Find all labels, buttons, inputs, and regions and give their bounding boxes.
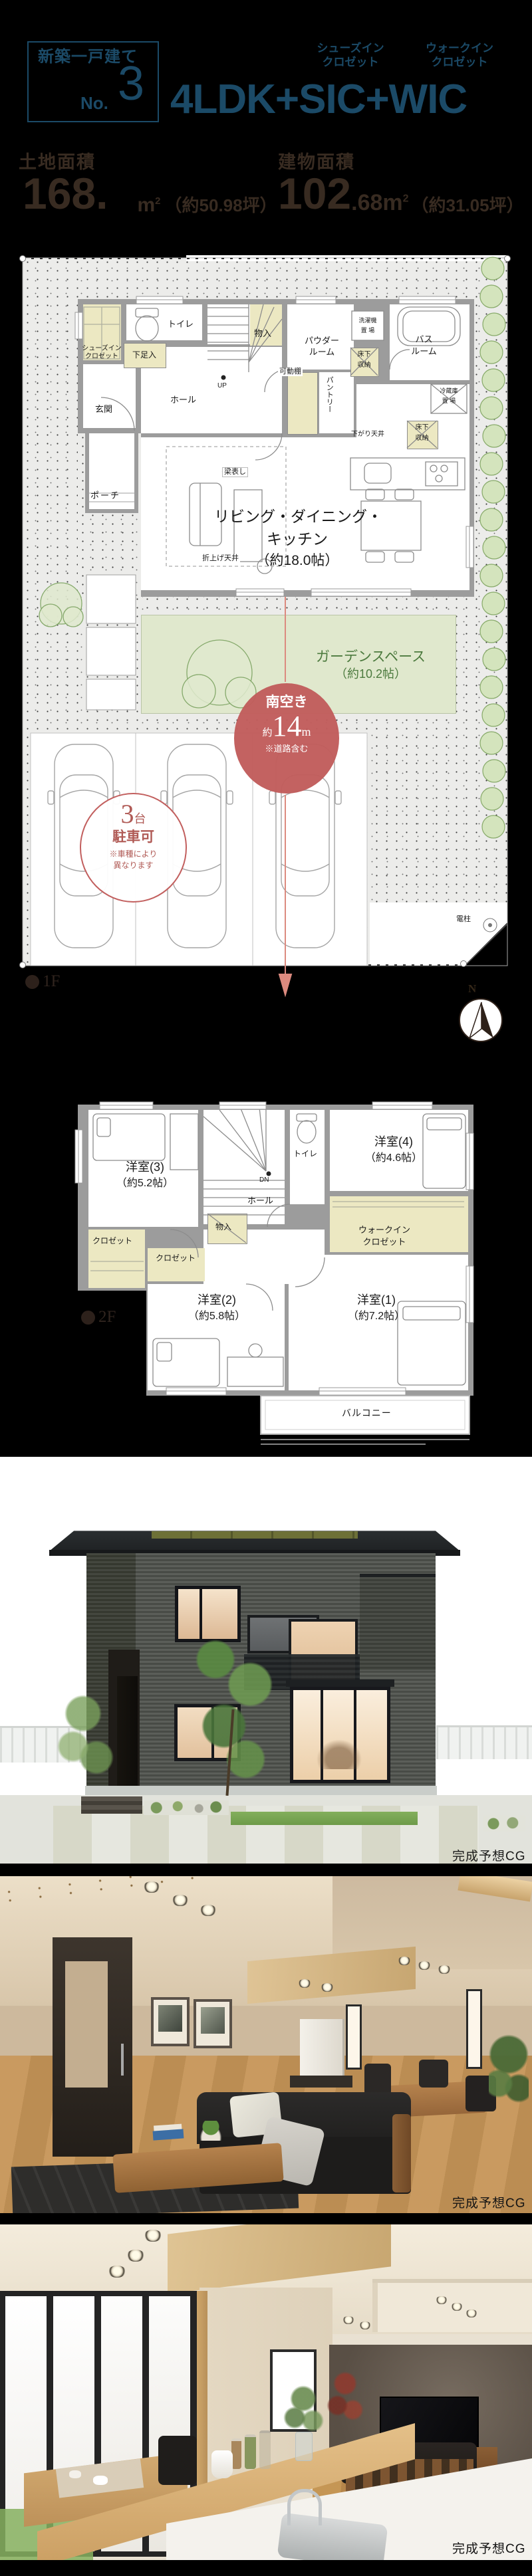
label-toilet-1f: トイレ <box>168 319 194 330</box>
label-pole: 電柱 <box>456 915 471 924</box>
floor1-marker: 1F <box>43 972 60 992</box>
label-wic-2: クロゼット <box>352 1236 416 1248</box>
label-wash-1: 洗濯機 <box>352 316 384 326</box>
int1-chair-2 <box>419 2060 448 2088</box>
south-distance: 14 <box>273 710 302 742</box>
south-line2: 約14m <box>234 712 339 741</box>
label-shelf: 可動棚 <box>278 368 303 376</box>
label-fs1a: 床下 <box>350 350 378 360</box>
header: 新築一戸建て No. 3 4LDK+SIC+WIC シューズイン クロゼット ウ… <box>0 0 532 255</box>
label-closet-a: クロゼット <box>92 1236 132 1245</box>
label-wic-1: ウォークイン <box>352 1224 416 1236</box>
sic-note-line1: シューズイン <box>311 41 390 55</box>
caption-interior1: 完成予想CG <box>452 2197 526 2212</box>
label-fridge: 冷蔵庫 置 場 <box>431 386 467 406</box>
label-powder: パウダー ルーム <box>299 335 345 358</box>
int1-chair-1 <box>364 2064 391 2095</box>
interior-photo-2: 完成予想CG <box>0 2224 532 2563</box>
exterior-photo: 完成予想CG <box>0 1457 532 1864</box>
int1-ceil-light-r1 <box>398 1957 411 1965</box>
room-2f-stairs <box>203 1110 285 1224</box>
label-porch: ポーチ <box>90 490 120 501</box>
ext-fence-right <box>436 1725 532 1759</box>
int1-bowl-plant <box>197 2121 225 2141</box>
int2-tray-light-1 <box>436 2296 448 2304</box>
land-area-value: 168. <box>23 171 108 215</box>
ext-planting-bed <box>144 1800 229 1815</box>
label-balcony: バルコニー <box>342 1408 392 1419</box>
label-bath: バス ルーム <box>406 334 442 358</box>
parking-line1: 3台 <box>80 801 187 827</box>
label-powder-1: パウダー <box>299 335 345 346</box>
label-r1-size: （約7.2帖） <box>336 1310 416 1323</box>
label-genkan: 玄関 <box>95 404 112 415</box>
compass-n: N <box>468 982 476 996</box>
sic-note-line2: クロゼット <box>311 55 390 69</box>
badge-no-prefix: No. <box>80 93 108 114</box>
parking-note2: 異なります <box>80 861 187 870</box>
label-downceiling: 下がり天井 <box>351 431 384 439</box>
ext-right-wing <box>360 1574 436 1670</box>
int2-cup-2 <box>69 2470 81 2478</box>
label-powder-2: ルーム <box>299 346 345 358</box>
label-bath-1: バス <box>406 334 442 346</box>
int1-ceil-light-r3 <box>438 1965 451 1974</box>
label-fridge-2: 置 場 <box>431 396 467 406</box>
int1-door-handle <box>121 2044 124 2076</box>
sic-note: シューズイン クロゼット <box>311 41 390 69</box>
label-r3-name: 洋室(3) <box>105 1160 185 1175</box>
int2-downlight-1 <box>144 2230 162 2242</box>
label-floorstorage-1: 床下 収納 <box>350 350 378 371</box>
land-area-unit: m2 <box>137 195 160 216</box>
int1-ceil-light-r2 <box>418 1961 431 1970</box>
label-r4: 洋室(4) （約4.6帖） <box>354 1135 434 1164</box>
int2-jar-2 <box>245 2434 256 2469</box>
floor2-marker-bullet <box>81 1311 95 1325</box>
label-ldk-2: キッチン <box>214 530 380 549</box>
land-area-unit-sup: 2 <box>155 195 160 207</box>
label-mono-2f: 物入 <box>215 1222 231 1232</box>
label-r3: 洋室(3) （約5.2帖） <box>105 1160 185 1190</box>
interior-photo-1: 完成予想CG <box>0 1876 532 2213</box>
building-area-value-row: 102 .68 m2 （約31.05坪） <box>278 171 524 215</box>
int2-vase <box>295 2432 313 2461</box>
int2-downlight-2 <box>126 2250 145 2262</box>
int1-kitchen-counter <box>290 2076 352 2088</box>
parking-note1: ※車種により <box>80 849 187 859</box>
badge-number: 3 <box>118 60 144 108</box>
wic-note-line1: ウォークイン <box>420 41 499 55</box>
label-floorstorage-2: 床下 収納 <box>407 423 437 444</box>
garden-label-line2: （約10.2帖） <box>299 667 442 682</box>
int1-downlight-1 <box>143 1881 160 1893</box>
int1-fridge <box>300 2019 344 2080</box>
int2-tray-light-5 <box>359 2321 371 2329</box>
int2-jar-3 <box>259 2430 271 2469</box>
int2-faucet <box>287 2489 322 2525</box>
south-approx: 約 <box>262 728 272 738</box>
parking-line2: 駐車可 <box>80 829 187 845</box>
ext-door <box>117 1676 138 1787</box>
label-r4-name: 洋室(4) <box>354 1135 434 1150</box>
int1-picture-2-art <box>201 2007 225 2034</box>
int1-slit-window-1 <box>346 2004 362 2070</box>
room-2f-1 <box>289 1255 468 1390</box>
label-sic-2: クロゼット <box>80 353 124 361</box>
label-oriage: 折上げ天井 <box>201 554 240 563</box>
bottom-black-strip <box>0 2563 532 2576</box>
label-wic: ウォークイン クロゼット <box>352 1224 416 1248</box>
int1-sofa-arm-wood <box>392 2114 411 2193</box>
caption-interior2: 完成予想CG <box>452 2542 526 2557</box>
balcony-outline <box>261 1396 469 1444</box>
label-bath-2: ルーム <box>406 346 442 358</box>
floor2-marker: 2F <box>98 1307 116 1327</box>
label-r2-size: （約5.8帖） <box>177 1310 257 1323</box>
property-flyer: 新築一戸建て No. 3 4LDK+SIC+WIC シューズイン クロゼット ウ… <box>0 0 532 2576</box>
building-area-tsubo: （約31.05坪） <box>412 196 524 215</box>
plot-top-margin <box>186 255 507 261</box>
label-r1: 洋室(1) （約7.2帖） <box>336 1293 416 1323</box>
wic-note: ウォークイン クロゼット <box>420 41 499 69</box>
ext-awning <box>286 1679 394 1687</box>
pantry-shelves <box>287 372 318 435</box>
int1-slit-window-2 <box>466 1989 482 2069</box>
parking-count-unit: 台 <box>134 812 146 825</box>
l-cut-2f <box>78 1291 146 1396</box>
closet-mono-1f <box>250 304 282 346</box>
ext-entrance-steps <box>81 1796 142 1814</box>
label-fs2b: 収納 <box>407 433 437 444</box>
label-fs2a: 床下 <box>407 423 437 433</box>
label-hall-1f: ホール <box>170 395 196 405</box>
building-area-int: 102 <box>278 171 351 215</box>
int1-soffit-light-1 <box>298 1979 311 1988</box>
int1-picture-1-art <box>158 2005 182 2032</box>
ext-solar-panels <box>152 1531 358 1539</box>
label-r4-size: （約4.6帖） <box>354 1152 434 1164</box>
int2-tray-light-3 <box>465 2309 477 2317</box>
label-fridge-1: 冷蔵庫 <box>431 386 467 396</box>
int2-downlight-3 <box>108 2266 126 2278</box>
land-area-label: 土地面積 <box>19 152 96 173</box>
garden-label-line1: ガーデンスペース <box>299 649 442 665</box>
building-area-frac: .68 <box>351 191 382 215</box>
ext-tree-left <box>53 1686 120 1796</box>
wic-note-line2: クロゼット <box>420 55 499 69</box>
ext-grass <box>231 1812 418 1825</box>
floor1-marker-bullet <box>25 975 39 989</box>
int2-kettle <box>211 2450 233 2478</box>
int1-plant <box>489 2030 529 2127</box>
south-line1: 南空き <box>234 694 339 710</box>
int2-cup-1 <box>93 2476 108 2485</box>
ext-interior-hint-dining <box>313 1736 366 1769</box>
caption-exterior: 完成予想CG <box>452 1850 526 1864</box>
plan-title: 4LDK+SIC+WIC <box>170 75 467 124</box>
label-shoe: 下足入 <box>124 350 165 360</box>
parking-count: 3 <box>121 799 134 829</box>
label-beam: 梁表し <box>222 467 248 477</box>
ext-planting-right <box>483 1816 525 1832</box>
label-dn: DN <box>259 1176 269 1184</box>
land-area-value-row: 168. m2 （約50.98坪） <box>23 171 277 215</box>
garden-label: ガーデンスペース （約10.2帖） <box>299 649 442 682</box>
parking-bubble-text: 3台 駐車可 ※車種により 異なります <box>80 801 187 870</box>
label-up: UP <box>217 382 227 390</box>
label-mono-1f: 物入 <box>254 328 271 339</box>
int2-jar-1 <box>231 2438 241 2469</box>
label-fs1b: 収納 <box>350 360 378 371</box>
label-wash-2: 置 場 <box>352 326 384 336</box>
int2-chair-black <box>158 2436 197 2485</box>
label-closet-b: クロゼット <box>156 1253 196 1263</box>
building-area-unit: m2 <box>382 191 408 215</box>
label-r3-size: （約5.2帖） <box>105 1177 185 1190</box>
label-hall-2f: ホール <box>247 1196 273 1206</box>
int1-door-panel <box>65 1961 108 2088</box>
int1-soffit-light-2 <box>321 1983 334 1992</box>
building-area-label: 建物面積 <box>278 152 355 173</box>
label-wash: 洗濯機 置 場 <box>352 316 384 336</box>
label-r1-name: 洋室(1) <box>336 1293 416 1308</box>
label-r2: 洋室(2) （約5.8帖） <box>177 1293 257 1323</box>
label-ldk-1: リビング・ダイニング・ <box>214 508 380 526</box>
room-genkan <box>83 364 136 428</box>
land-area-tsubo: （約50.98坪） <box>165 196 277 215</box>
int1-downlight-3 <box>199 1905 217 1916</box>
south-unit: m <box>302 725 311 738</box>
int2-tray-light-4 <box>342 2316 354 2324</box>
int2-tray-light-2 <box>451 2303 463 2311</box>
south-note: ※道路含む <box>234 744 339 754</box>
south-bubble-text: 南空き 約14m ※道路含む <box>234 694 339 754</box>
label-r2-name: 洋室(2) <box>177 1293 257 1308</box>
label-sic-1: シューズイン <box>80 345 124 353</box>
label-sic: シューズイン クロゼット <box>80 345 124 361</box>
porch <box>85 433 138 513</box>
int1-downlight-2 <box>172 1895 189 1906</box>
compass-circle <box>459 998 503 1042</box>
listing-number-badge: 新築一戸建て No. 3 <box>27 41 159 122</box>
label-toilet-2f: トイレ <box>293 1149 317 1158</box>
label-pantry: パントリー <box>325 376 333 433</box>
building-area-unit-sup: 2 <box>403 193 409 205</box>
